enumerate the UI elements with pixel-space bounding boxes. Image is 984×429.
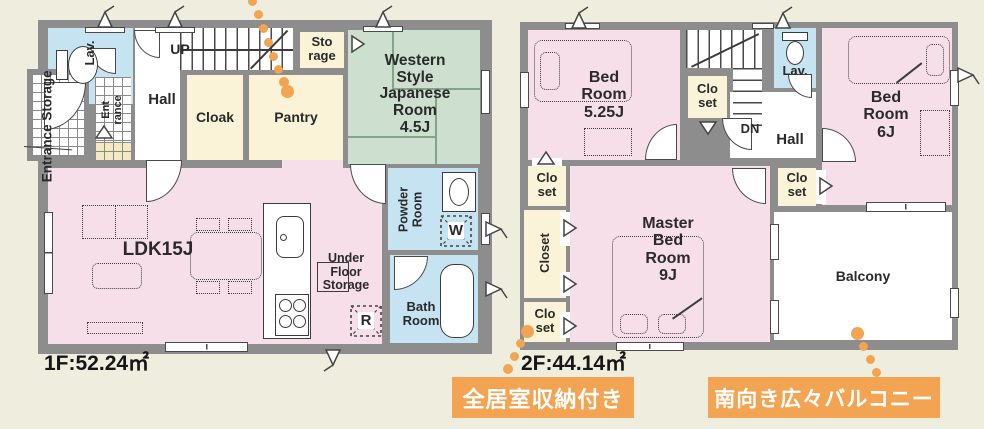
pillow — [620, 314, 648, 334]
faucet — [280, 234, 287, 241]
label-entrance: Ent rance — [101, 84, 125, 136]
entrance-step — [95, 142, 131, 160]
label-closet-stairs: Clo set — [688, 82, 727, 110]
feature-badge-balcony: 南向き広々バルコニー — [708, 377, 940, 418]
label-bath-room: Bath Room — [393, 300, 449, 328]
area-label-1f: 1F:52.24㎡ — [44, 347, 149, 377]
door-fold-icon — [698, 120, 718, 136]
label-closet-bedroom6: Clo set — [778, 171, 816, 199]
vent-icon — [482, 216, 508, 242]
sofa-divider — [115, 205, 116, 239]
washer-label: W — [448, 222, 464, 239]
label-bedroom-6: Bed Room 6J — [850, 89, 922, 141]
label-dn: DN — [732, 122, 768, 136]
vent-icon — [162, 5, 188, 31]
door-fold-icon — [562, 218, 578, 238]
label-closet-bedroom525: Clo set — [528, 171, 566, 199]
label-up: UP — [162, 42, 198, 57]
label-pantry: Pantry — [256, 110, 336, 125]
balcony-left-opening — [770, 224, 779, 260]
vent-icon — [482, 276, 508, 302]
powder-sink-bowl — [449, 178, 469, 206]
label-under-floor-storage: Under Floor Storage — [306, 252, 386, 293]
pillow — [540, 52, 560, 90]
window-western-right — [481, 70, 490, 114]
label-ldk: LDK15J — [122, 240, 194, 261]
label-hall-1f: Hall — [142, 92, 182, 108]
label-entrance-storage: Entrance Storage — [41, 56, 56, 196]
pillow — [926, 44, 944, 76]
coffee-table — [92, 263, 142, 289]
dining-chair — [228, 218, 252, 231]
desk — [584, 128, 632, 156]
vent-icon — [770, 6, 796, 32]
label-storage: Sto rage — [300, 35, 344, 63]
window-master-bottom — [616, 342, 684, 351]
burner — [279, 299, 292, 312]
label-bedroom-525: Bed Room 5.25J — [568, 69, 640, 121]
refrigerator-label: R — [358, 312, 374, 329]
window-ldk-left — [44, 212, 53, 294]
vent-icon — [954, 62, 980, 88]
dining-chair — [196, 218, 220, 231]
balcony-right-opening — [950, 288, 959, 318]
label-western-room: Western Style Japanese Room 4.5J — [360, 53, 470, 137]
floorplan-canvas: W R Lav. UP Hall Sto rage Cloak Pantry W… — [0, 0, 984, 429]
dining-table — [190, 232, 262, 280]
label-powder-room: Powder Room — [398, 181, 425, 239]
burner — [279, 315, 292, 328]
label-closet-long: Closet — [538, 226, 552, 280]
label-lav-2f: Lav. — [774, 64, 816, 78]
label-cloak: Cloak — [188, 110, 242, 125]
floorplan-2f: Bed Room 5.25J Clo set DN Lav. Hall Bed … — [518, 18, 968, 358]
label-master-bedroom: Master Bed Room 9J — [632, 215, 704, 284]
vent-icon — [566, 6, 592, 32]
dining-chair — [228, 281, 252, 294]
door-fold-icon — [536, 150, 556, 166]
label-hall-2f: Hall — [770, 132, 810, 148]
balcony-sliding-door — [866, 202, 946, 212]
window-ldk-bottom — [165, 342, 248, 352]
door-fold-icon — [818, 176, 834, 196]
label-balcony: Balcony — [823, 269, 903, 284]
door-fold-icon — [350, 34, 366, 54]
burner — [293, 315, 306, 328]
balcony-left-opening — [770, 300, 779, 334]
desk — [920, 110, 950, 156]
label-lav-1f: Lav. — [83, 25, 97, 81]
dining-chair — [196, 281, 220, 294]
area-label-2f: 2F:44.14㎡ — [521, 347, 626, 377]
vent-icon — [370, 5, 396, 31]
floorplan-1f: W R Lav. UP Hall Sto rage Cloak Pantry W… — [30, 18, 494, 358]
vent-icon — [320, 346, 346, 372]
feature-badge-storage: 全居室収納付き — [452, 377, 634, 418]
window-bed525-left — [520, 72, 529, 108]
door-fold-icon — [562, 274, 578, 294]
burner — [293, 299, 306, 312]
tv-stand — [87, 322, 143, 334]
